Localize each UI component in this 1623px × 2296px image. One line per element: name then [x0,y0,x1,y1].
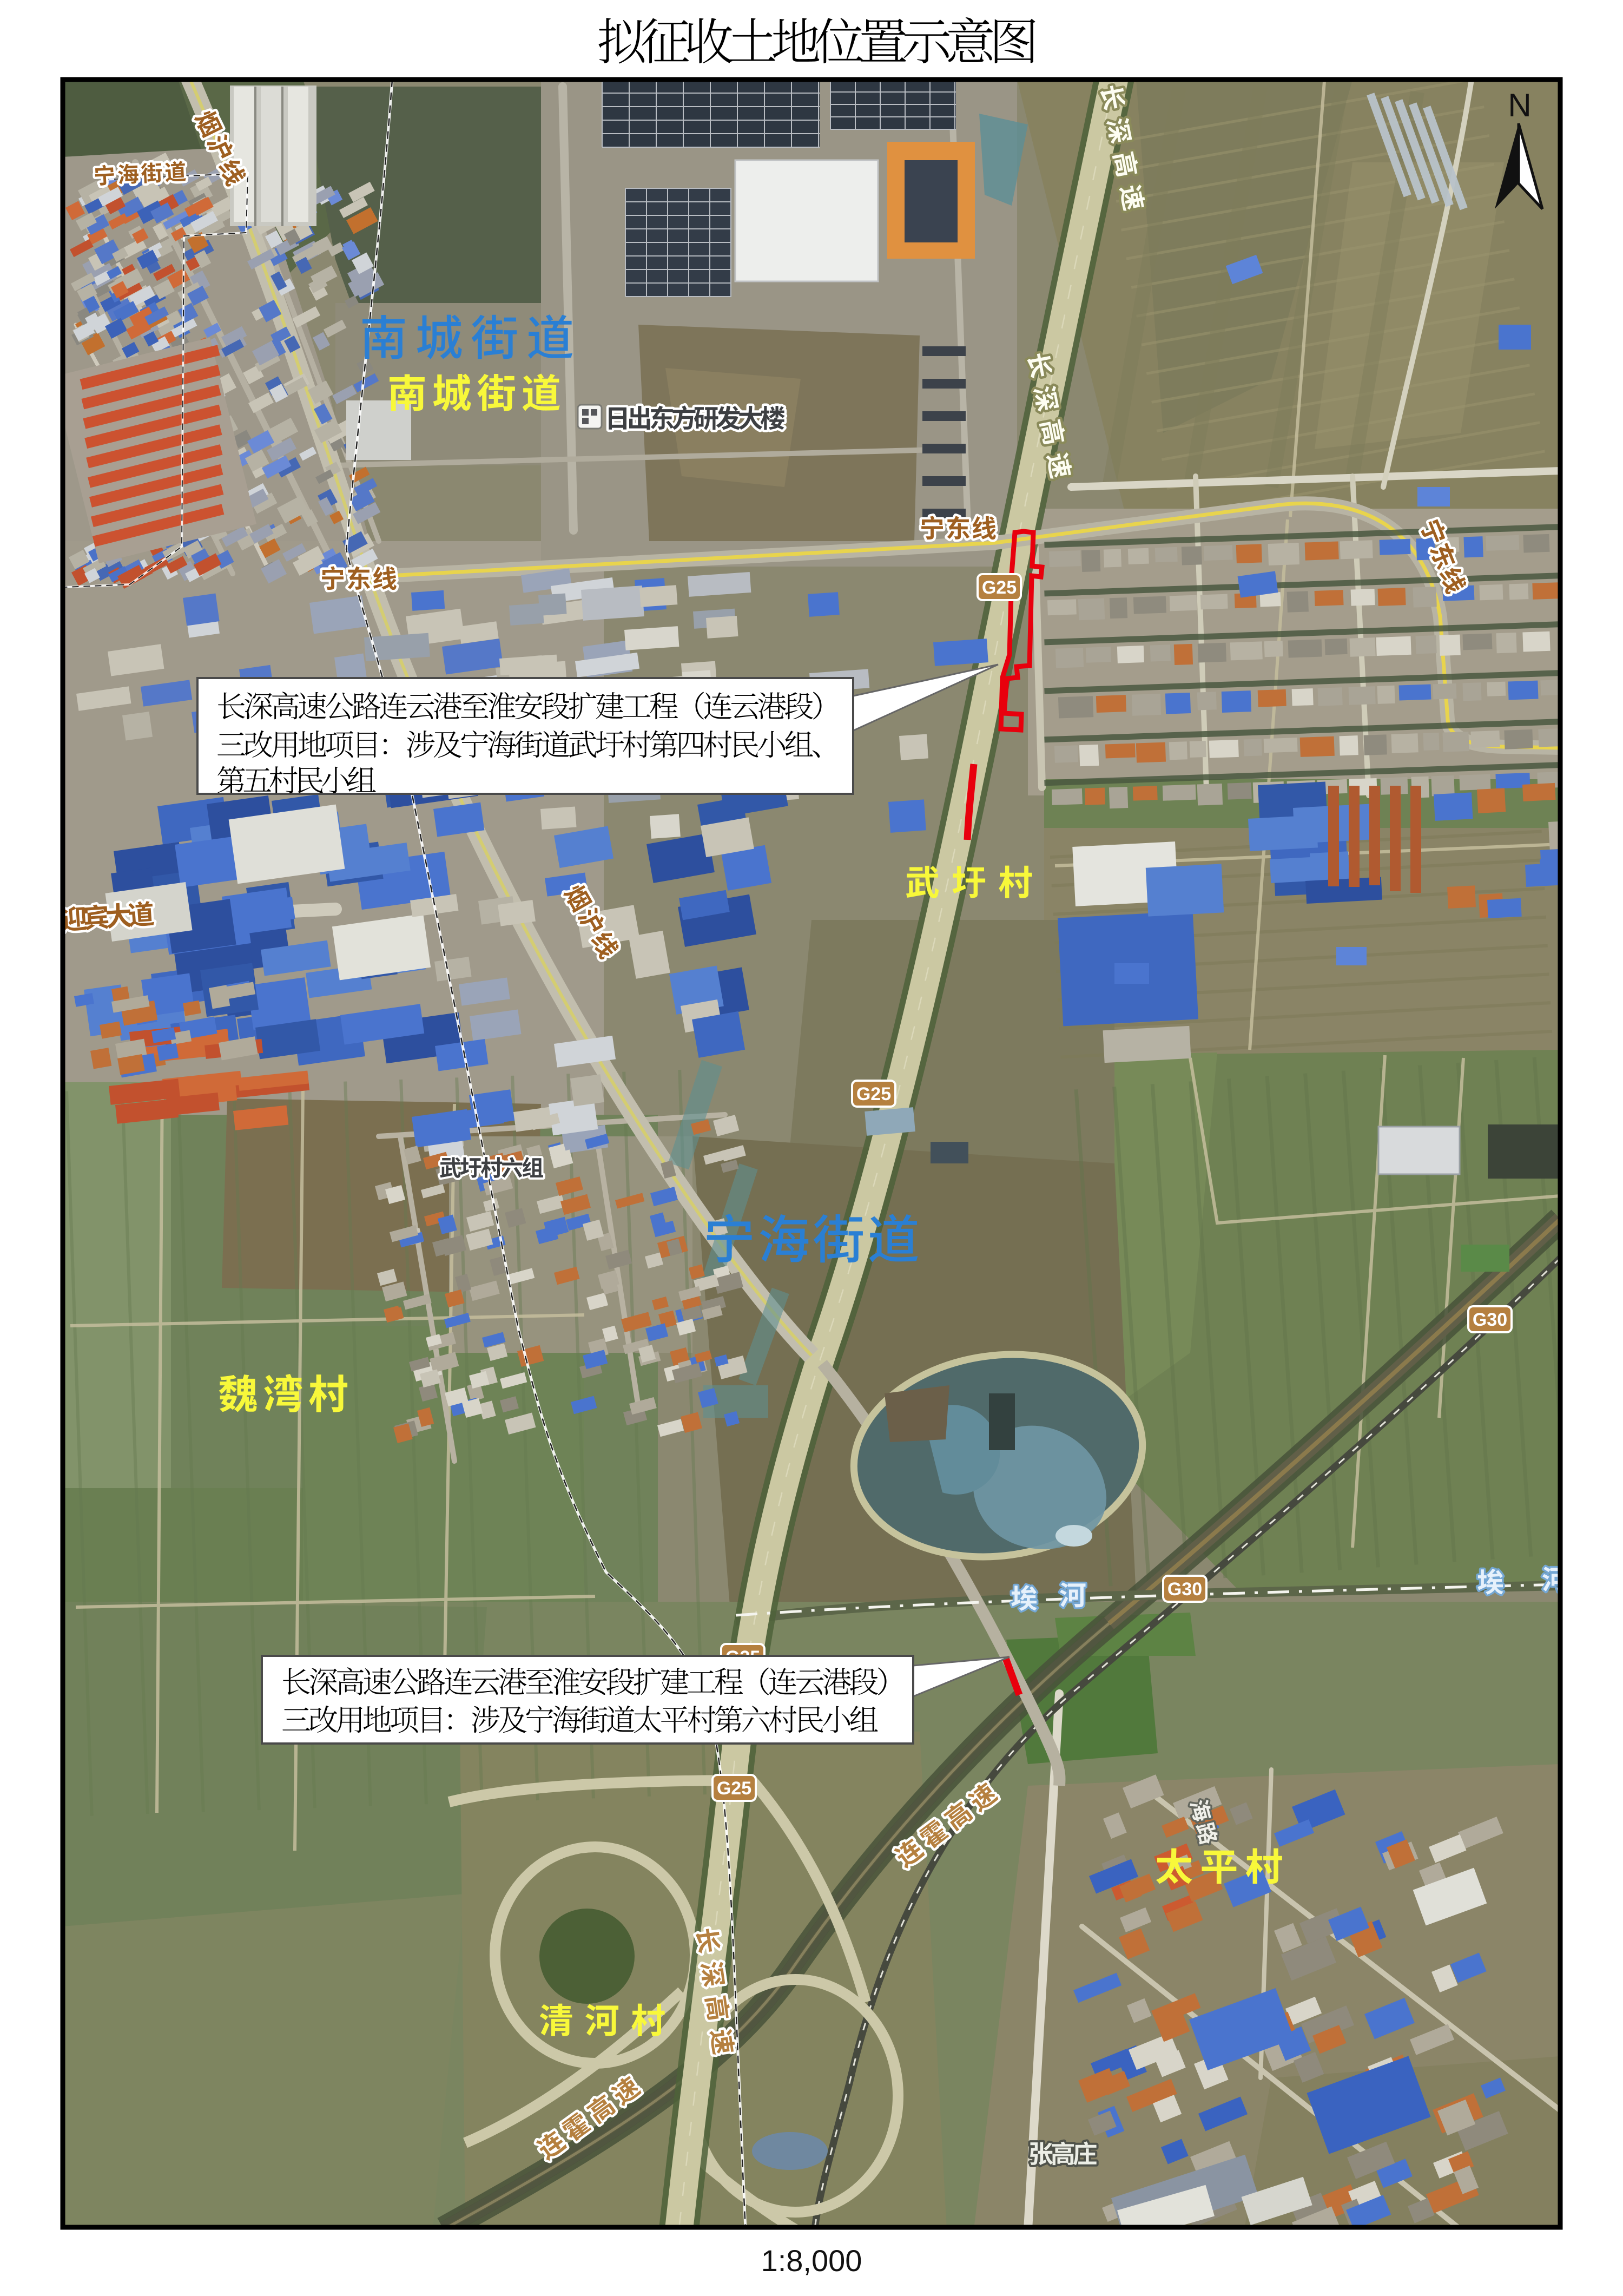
svg-text:G25: G25 [717,1778,751,1799]
svg-text:G25: G25 [982,577,1017,598]
svg-text:G30: G30 [1167,1579,1202,1600]
svg-text:1:8,000: 1:8,000 [761,2244,862,2278]
svg-text:N: N [1508,87,1531,123]
svg-text:G30: G30 [1473,1310,1507,1330]
svg-text:G25: G25 [856,1084,891,1104]
